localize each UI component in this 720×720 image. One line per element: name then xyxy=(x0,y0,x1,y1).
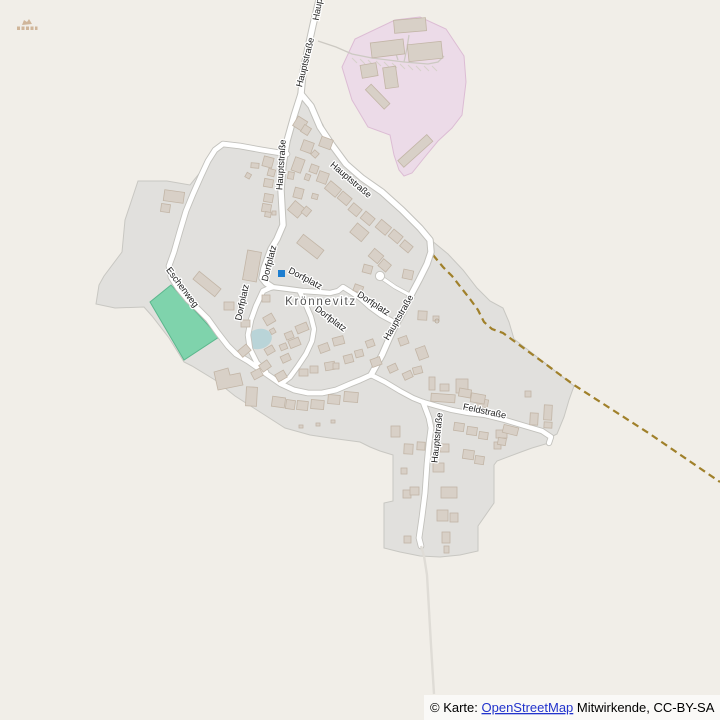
svg-text:Krönnevitz: Krönnevitz xyxy=(285,295,357,308)
svg-text:© Karte: OpenStreetMap Mitwirk: © Karte: OpenStreetMap Mitwirkende, CC-B… xyxy=(430,700,715,715)
